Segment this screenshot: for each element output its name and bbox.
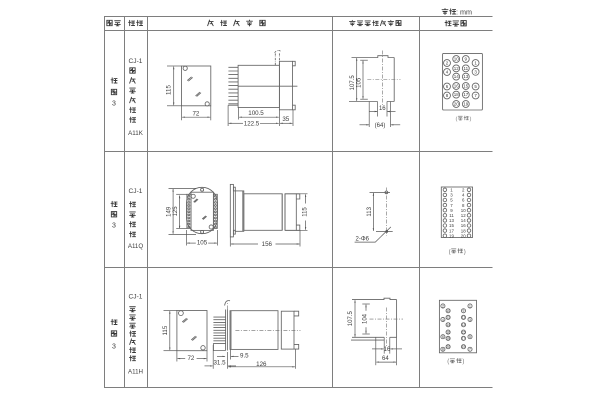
svg-text:10: 10	[446, 309, 450, 313]
svg-text:64: 64	[382, 356, 389, 362]
svg-text:8: 8	[442, 348, 444, 352]
svg-text:(64): (64)	[375, 123, 386, 129]
svg-text:CJ-1: CJ-1	[129, 294, 143, 301]
svg-text:14: 14	[446, 323, 450, 327]
svg-text:16: 16	[446, 330, 450, 334]
svg-text:3: 3	[112, 344, 116, 351]
svg-text:11: 11	[462, 316, 466, 320]
svg-text:17: 17	[463, 92, 469, 97]
svg-text:19: 19	[463, 102, 469, 107]
svg-text:72: 72	[187, 355, 194, 362]
svg-text:19: 19	[449, 233, 454, 238]
svg-text:5: 5	[469, 335, 471, 339]
svg-text:): )	[470, 116, 472, 122]
svg-text:19: 19	[462, 345, 466, 349]
svg-text:104: 104	[363, 313, 369, 324]
svg-text:9: 9	[463, 309, 465, 313]
svg-text:18: 18	[454, 92, 460, 97]
svg-text:100.5: 100.5	[248, 110, 264, 117]
svg-text:107.5: 107.5	[350, 75, 356, 91]
svg-text:10: 10	[454, 56, 460, 61]
svg-text:2-Φ6: 2-Φ6	[356, 237, 370, 243]
svg-text:115: 115	[166, 85, 173, 95]
svg-text:): )	[464, 249, 466, 255]
svg-text:126: 126	[256, 361, 267, 368]
svg-text:2: 2	[442, 304, 444, 308]
svg-text:1: 1	[469, 304, 471, 308]
svg-text:CJ-1: CJ-1	[129, 188, 143, 195]
svg-text:CJ-1: CJ-1	[129, 58, 143, 65]
svg-text:115: 115	[162, 325, 169, 335]
svg-text:20: 20	[446, 345, 450, 349]
svg-text:18: 18	[446, 337, 450, 341]
svg-text:A11Q: A11Q	[128, 243, 144, 250]
svg-text:125: 125	[173, 206, 179, 217]
svg-text:3: 3	[469, 318, 471, 322]
svg-text:(: (	[449, 249, 451, 255]
svg-text:20: 20	[461, 233, 466, 238]
svg-text:A11K: A11K	[128, 130, 144, 137]
svg-text:105: 105	[357, 77, 363, 88]
svg-text:3: 3	[112, 223, 116, 230]
svg-text:6: 6	[442, 335, 444, 339]
svg-text:12: 12	[454, 66, 460, 71]
svg-text:107.5: 107.5	[348, 311, 354, 327]
svg-text:16: 16	[384, 347, 391, 353]
svg-text:(: (	[447, 359, 449, 365]
svg-text:122.5: 122.5	[244, 120, 260, 127]
svg-text:156: 156	[262, 241, 273, 248]
svg-text:105: 105	[197, 240, 208, 247]
svg-text:15: 15	[463, 84, 469, 89]
svg-text:A11H: A11H	[128, 369, 143, 376]
svg-text:13: 13	[463, 74, 469, 79]
svg-text:17: 17	[462, 337, 466, 341]
svg-text:149: 149	[166, 206, 172, 217]
svg-text:15: 15	[462, 330, 466, 334]
svg-text:3: 3	[112, 101, 116, 108]
svg-text:16: 16	[379, 106, 386, 112]
svg-text:: mm: : mm	[456, 7, 472, 16]
svg-text:): )	[462, 359, 464, 365]
svg-text:(: (	[455, 116, 457, 122]
svg-text:14: 14	[454, 74, 460, 79]
svg-text:113: 113	[367, 206, 373, 216]
svg-text:13: 13	[462, 323, 466, 327]
svg-text:12: 12	[446, 316, 450, 320]
svg-text:20: 20	[454, 102, 460, 107]
svg-text:4: 4	[442, 318, 444, 322]
svg-text:35: 35	[282, 116, 289, 123]
svg-text:11: 11	[463, 66, 468, 71]
svg-text:9.5: 9.5	[240, 352, 249, 359]
svg-text:7: 7	[469, 348, 471, 352]
svg-text:115: 115	[302, 207, 308, 217]
svg-text:72: 72	[192, 110, 199, 117]
svg-text:16: 16	[454, 84, 460, 89]
svg-text:31.5: 31.5	[213, 360, 226, 367]
